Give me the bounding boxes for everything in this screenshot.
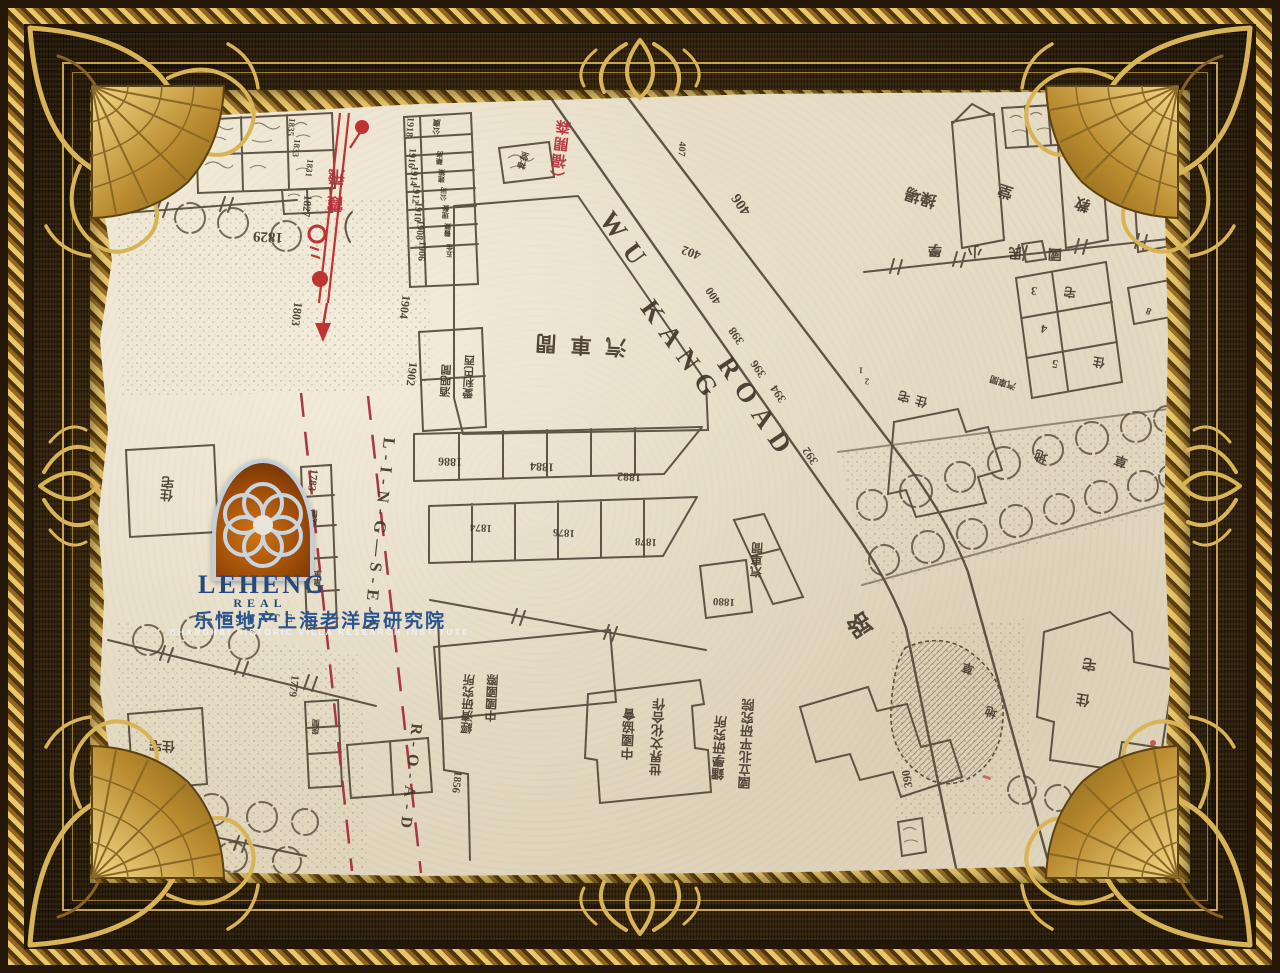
map-label: 宅 — [1063, 285, 1077, 299]
map-label: 藥房 — [436, 151, 444, 165]
map-label: 1906 — [415, 241, 426, 262]
map-label: 1882 — [617, 470, 642, 483]
map-label: 1835 — [286, 118, 297, 137]
arch-window-icon — [212, 459, 314, 581]
logo-tagline: SHANGHAI HISTORIC VILLA RESEARCH INSTITU… — [160, 628, 480, 637]
map-label: 住 — [1092, 355, 1106, 369]
map-label: 392 — [800, 445, 820, 467]
map-label: 堂 — [997, 181, 1016, 200]
map-label: 8 — [1145, 304, 1153, 315]
map-label: 世界文化合作 — [649, 698, 666, 777]
map-labels-layer: 1829182718311833183518031918191619141912… — [0, 0, 1280, 973]
map-label: 酒吧間 — [441, 364, 454, 398]
map-label: 1886 — [438, 455, 463, 468]
map-label: 草 — [1113, 453, 1130, 470]
map-label: 神堂 — [517, 151, 531, 171]
map-label: 醫藥 — [444, 223, 452, 237]
map-label: 地 — [1033, 448, 1050, 465]
map-label: 1904 — [398, 294, 413, 319]
map-label: 3 — [1030, 285, 1038, 298]
map-label: 402 — [680, 244, 703, 263]
map-label: 住宅 — [891, 387, 929, 408]
map-label: 汽車間 — [750, 542, 764, 579]
map-label: 愛利巴西 — [463, 355, 476, 400]
map-label: 住宅 — [149, 739, 176, 753]
map-label: 4 — [1040, 323, 1048, 336]
map-label: 住宅 — [1077, 635, 1103, 708]
map-label: 2 — [865, 376, 870, 385]
map-label: 1880 — [713, 595, 736, 607]
frame-opening: 1829182718311833183518031918191619141912… — [0, 0, 1280, 973]
map-label: 中國協會 — [621, 708, 637, 761]
map-label: 407 — [675, 141, 686, 157]
map-label: （福開森 — [550, 117, 573, 186]
map-label: 1902 — [405, 361, 420, 386]
map-label: 1874 — [470, 521, 493, 533]
map-label: 房間 — [312, 719, 321, 735]
map-label: 公廣 — [433, 119, 442, 135]
map-label: 1918 — [403, 117, 414, 138]
map-label: 中國國際 — [485, 674, 499, 723]
map-label: 1908 — [413, 220, 424, 241]
map-label: 1827 — [299, 194, 312, 217]
map-label: 1878 — [635, 535, 658, 547]
map-label: 理髮 — [442, 205, 450, 219]
map-label: 1 — [859, 365, 864, 374]
map-label: 鐳學研究所 — [712, 715, 728, 781]
map-label: 汽車間 — [989, 374, 1017, 391]
map-label: 住宅 — [160, 475, 175, 502]
map-label: 390 — [900, 769, 915, 789]
map-label: 406 — [729, 190, 754, 217]
rose-window-icon — [216, 463, 310, 577]
map-label: 1856 — [449, 770, 463, 793]
map-label: 5 — [1051, 358, 1059, 371]
map-label: 1833 — [291, 139, 302, 158]
map-label: 建築 — [438, 169, 446, 183]
map-label: 1876 — [553, 526, 576, 538]
map-label: 1831 — [304, 159, 315, 178]
map-label: 1829 — [253, 228, 284, 245]
map-label: 國立北平研究院 — [738, 698, 756, 790]
map-label: 操場 — [903, 183, 938, 208]
map-label: 五金 — [446, 244, 454, 258]
map-label: 汽車間 — [521, 331, 627, 357]
map-label: 1803 — [290, 301, 305, 326]
map-label: 國民小學 — [902, 240, 1062, 260]
map-label: 400 — [703, 285, 723, 307]
map-label: 草 — [960, 660, 975, 675]
map-label: R-O-A-D — [396, 722, 424, 835]
map-label: 路 — [844, 607, 877, 640]
map-label: 公司 — [440, 187, 448, 201]
map-label: 經濟研究所 — [460, 674, 475, 735]
map-label: 398 — [726, 325, 746, 347]
map-label: 地 — [983, 704, 998, 719]
map-label: KANG — [636, 295, 729, 409]
framed-map-artwork: 1829182718311833183518031918191619141912… — [0, 0, 1280, 973]
map-label: 教 — [1074, 194, 1093, 213]
map-label: WU — [594, 207, 657, 280]
map-label: 霞飛 — [328, 159, 348, 214]
map-label: 1779 — [286, 674, 300, 697]
map-label: 1884 — [530, 460, 555, 473]
